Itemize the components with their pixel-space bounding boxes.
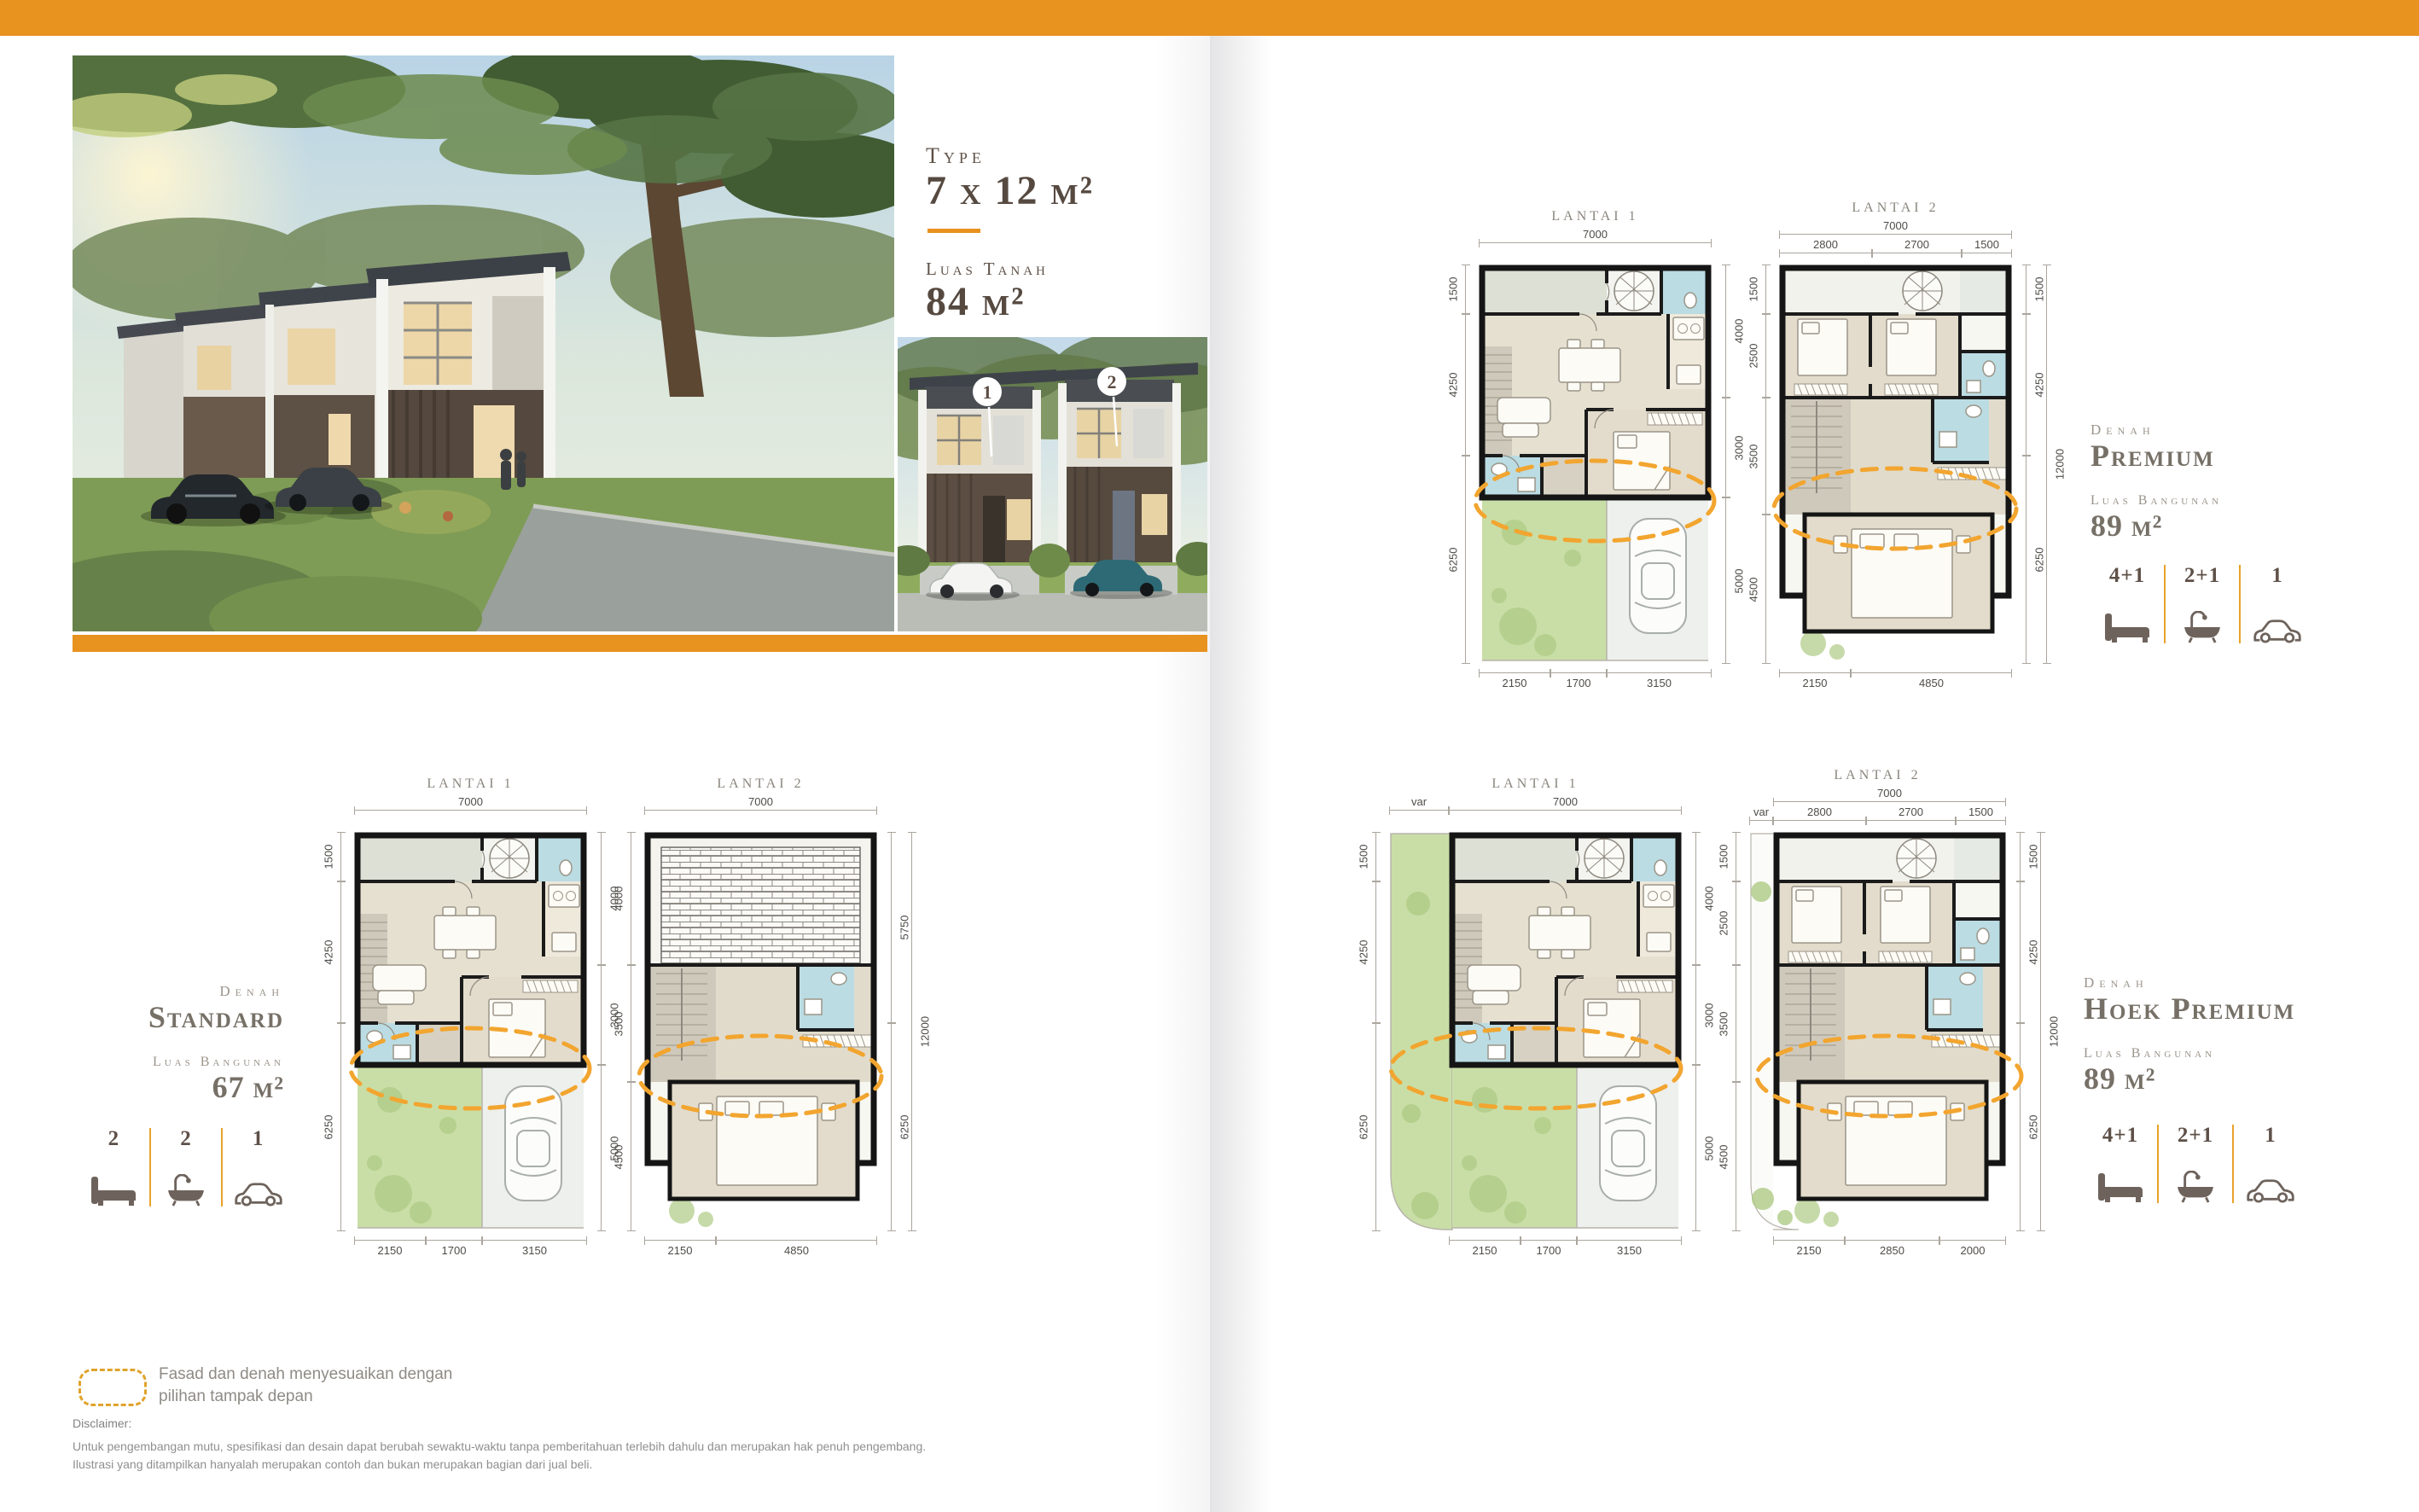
dim-bottom: 2150: [644, 1240, 716, 1241]
premium-kicker: Denah: [2090, 420, 2346, 440]
dim-top-sub: 1500: [1956, 820, 2006, 821]
dim-right: 6250: [2020, 1023, 2021, 1231]
dim-bottom: 3150: [1577, 1240, 1682, 1241]
floorplan-svg: [354, 832, 587, 1231]
hoek-baths: 2+1: [2159, 1125, 2232, 1203]
legend-line2: pilihan tampak depan: [159, 1386, 452, 1408]
photo-accent-strip: [73, 635, 1207, 652]
facade-legend-text: Fasad dan denah menyesuaikan dengan pili…: [159, 1364, 452, 1407]
dim-right: 3000: [601, 965, 602, 1065]
standard-beds: 2: [79, 1128, 149, 1207]
dim-bottom: 2150: [1449, 1240, 1521, 1241]
plan-label: Lantai 1: [1479, 210, 1712, 224]
facade-legend-swatch: [79, 1369, 147, 1406]
dim-right: 5000: [1695, 1065, 1696, 1231]
dim-right: 5000: [1725, 497, 1726, 664]
dim-top-sub: 1500: [1962, 253, 2012, 253]
dim-left: 6250: [340, 1023, 341, 1231]
dim-right: 1500: [2026, 265, 2026, 314]
dim-top: 7000: [354, 810, 587, 811]
bed-icon: [2104, 613, 2150, 643]
dim-bottom: 4850: [1851, 672, 2012, 673]
dim-top: 7000: [644, 810, 877, 811]
premium-name: Premium: [2090, 440, 2346, 473]
dim-bottom: 2150: [1779, 672, 1851, 673]
standard-baths-count: 2: [180, 1128, 192, 1149]
type-value: 7 x 12 m²: [926, 169, 1207, 213]
land-area-label: Luas Tanah: [926, 259, 1207, 280]
premium-beds-count: 4+1: [2109, 565, 2145, 586]
dim-left: 1500: [340, 832, 341, 881]
floorplan-svg: [1779, 265, 2012, 664]
hoek-cars: 1: [2234, 1125, 2307, 1203]
dim-right: 4250: [2026, 314, 2026, 456]
standard-area-label: Luas Bangunan: [73, 1053, 284, 1072]
standard-area-value: 67 m²: [73, 1072, 284, 1104]
premium-info-block: Denah Premium Luas Bangunan 89 m²: [2090, 420, 2346, 543]
dim-right: 5750: [891, 832, 892, 1023]
dim-bottom: 2150: [354, 1240, 426, 1241]
hoek-info-block: Denah Hoek Premium Luas Bangunan 89 m²: [2084, 973, 2365, 1096]
dim-right: 6250: [2026, 456, 2026, 664]
premium-beds: 4+1: [2090, 565, 2164, 643]
dim-right: 4000: [1725, 265, 1726, 398]
dim-bottom: 1700: [1521, 1240, 1577, 1241]
dim-right: 1500: [2020, 832, 2021, 881]
standard-baths: 2: [151, 1128, 222, 1207]
premium-baths: 2+1: [2166, 565, 2239, 643]
dim-top-sub: 2700: [1872, 253, 1962, 253]
dim-right: 4250: [2020, 881, 2021, 1023]
dim-left: 4500: [631, 1082, 631, 1231]
dim-left: 4000: [631, 832, 631, 965]
dim-right: 3000: [1695, 965, 1696, 1065]
floorplan-svg: [1479, 265, 1712, 664]
bed-icon: [2097, 1172, 2143, 1203]
facade-options-photo: 1 2: [898, 337, 1207, 631]
brochure-spread: 1 2 Type 7 x 12 m² Luas Tanah 84 m² Dena…: [0, 0, 2419, 1512]
premium-stats: 4+1 2+1 1: [2090, 565, 2314, 643]
dim-top-sub: 2800: [1779, 253, 1872, 253]
standard-cars: 1: [223, 1128, 294, 1207]
hoek-cars-count: 1: [2265, 1125, 2277, 1146]
floorplan-svg: [644, 832, 877, 1231]
page-fold-shadow: [1210, 36, 1271, 1512]
type-kicker: Type: [926, 143, 1207, 169]
dim-left: 1500: [1736, 832, 1736, 881]
car-icon: [2246, 1178, 2295, 1203]
dim-bottom: 2150: [1773, 1240, 1845, 1241]
dim-top-sub: 2700: [1866, 820, 1956, 821]
dim-top: 7000: [1779, 234, 2012, 235]
dim-top: 7000: [1479, 242, 1712, 243]
disclaimer-line1: Untuk pengembangan mutu, spesifikasi dan…: [73, 1438, 1182, 1456]
standard-info-block: Denah Standard Luas Bangunan 67 m²: [73, 981, 284, 1104]
type-title-block: Type 7 x 12 m² Luas Tanah 84 m²: [926, 143, 1207, 324]
bath-icon: [2175, 1171, 2216, 1203]
hoek-area-value: 89 m²: [2084, 1063, 2365, 1096]
dim-bottom: 2150: [1479, 672, 1550, 673]
standard-name: Standard: [73, 1002, 284, 1034]
dim-right: 3000: [1725, 398, 1726, 497]
legend-line1: Fasad dan denah menyesuaikan dengan: [159, 1364, 452, 1386]
dim-right-overall: 12000: [2040, 832, 2041, 1231]
premium-cars-count: 1: [2271, 565, 2283, 586]
dim-left: 6250: [1375, 1023, 1376, 1231]
car-icon: [234, 1181, 283, 1207]
floorplan-svg: [1749, 832, 2006, 1231]
dim-right-overall: 12000: [2046, 265, 2047, 664]
hoek-baths-count: 2+1: [2178, 1125, 2213, 1146]
hoek-beds: 4+1: [2084, 1125, 2157, 1203]
dim-left: 3500: [1736, 965, 1736, 1082]
car-icon: [2253, 618, 2302, 643]
top-accent-bar: [0, 0, 2419, 36]
bed-icon: [90, 1176, 137, 1207]
hoek-beds-count: 4+1: [2102, 1125, 2138, 1146]
dim-left: 1500: [1375, 832, 1376, 881]
title-accent-rule: [927, 229, 980, 233]
dim-left: 2500: [1736, 881, 1736, 965]
hero-photo: [73, 55, 894, 631]
dim-left: 4500: [1765, 515, 1766, 664]
dim-bottom: 4850: [716, 1240, 877, 1241]
dim-bottom: 1700: [1550, 672, 1607, 673]
standard-cars-count: 1: [253, 1128, 265, 1149]
standard-kicker: Denah: [73, 981, 284, 1002]
land-area-value: 84 m²: [926, 280, 1207, 324]
dim-left: 4500: [1736, 1082, 1736, 1231]
facade-marker-2-label: 2: [1108, 371, 1117, 393]
dim-top-var: var: [1749, 820, 1773, 821]
premium-area-value: 89 m²: [2090, 510, 2346, 543]
dim-bottom: 3150: [1607, 672, 1712, 673]
dim-right: 4000: [1695, 832, 1696, 965]
dim-right-overall: 12000: [911, 832, 912, 1231]
dim-bottom: 2850: [1845, 1240, 1939, 1241]
dim-left: 4250: [1465, 314, 1466, 456]
dim-right: 5000: [601, 1065, 602, 1231]
plan-label: Lantai 1: [354, 777, 587, 791]
disclaimer: Disclaimer: Untuk pengembangan mutu, spe…: [73, 1415, 1182, 1474]
dim-left: 6250: [1465, 456, 1466, 664]
bath-icon: [166, 1174, 206, 1207]
dim-left: 4250: [1375, 881, 1376, 1023]
dim-left: 4250: [340, 881, 341, 1023]
dim-left: 2500: [1765, 314, 1766, 398]
dim-right: 6250: [891, 1023, 892, 1231]
dim-left: 3500: [1765, 398, 1766, 515]
dim-top-sub: 2800: [1773, 820, 1866, 821]
dim-left: 1500: [1765, 265, 1766, 314]
bath-icon: [2182, 611, 2223, 643]
plan-label: Lantai 2: [644, 777, 877, 791]
hoek-area-label: Luas Bangunan: [2084, 1044, 2365, 1063]
dim-top: 7000: [1773, 801, 2006, 802]
premium-area-label: Luas Bangunan: [2090, 491, 2346, 510]
dim-top-var: var: [1389, 810, 1449, 811]
plan-label: Lantai 2: [1749, 769, 2006, 782]
facade-marker-1-label: 1: [983, 381, 992, 403]
plan-label: Lantai 1: [1389, 777, 1682, 791]
dim-bottom: 3150: [482, 1240, 587, 1241]
standard-stats: 2 2 1: [79, 1128, 294, 1207]
standard-beds-count: 2: [108, 1128, 120, 1149]
dim-top: 7000: [1449, 810, 1682, 811]
premium-baths-count: 2+1: [2184, 565, 2220, 586]
hoek-stats: 4+1 2+1 1: [2084, 1125, 2307, 1203]
hoek-kicker: Denah: [2084, 973, 2365, 993]
disclaimer-title: Disclaimer:: [73, 1415, 1182, 1433]
premium-cars: 1: [2241, 565, 2314, 643]
dim-left: 1500: [1465, 265, 1466, 314]
dim-bottom: 2000: [1939, 1240, 2006, 1241]
dim-bottom: 1700: [426, 1240, 482, 1241]
dim-right: 4000: [601, 832, 602, 965]
hoek-name: Hoek Premium: [2084, 993, 2365, 1026]
dim-left: 3500: [631, 965, 631, 1082]
floorplan-svg: [1389, 832, 1682, 1231]
disclaimer-line2: Ilustrasi yang ditampilkan hanyalah meru…: [73, 1456, 1182, 1474]
plan-label: Lantai 2: [1779, 201, 2012, 215]
